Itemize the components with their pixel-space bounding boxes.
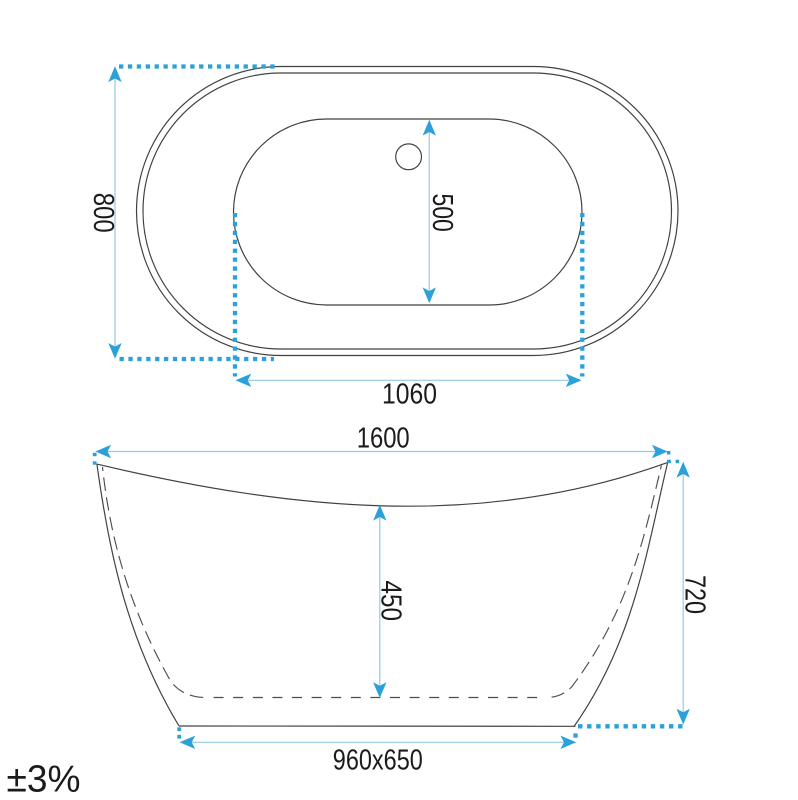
svg-text:1600: 1600 [357,423,410,455]
svg-text:±3%: ±3% [7,759,81,800]
svg-text:720: 720 [678,575,710,614]
svg-text:800: 800 [87,193,119,233]
svg-text:960x650: 960x650 [333,745,423,777]
svg-text:450: 450 [374,580,406,621]
svg-text:1060: 1060 [382,378,437,410]
svg-text:500: 500 [426,193,458,231]
